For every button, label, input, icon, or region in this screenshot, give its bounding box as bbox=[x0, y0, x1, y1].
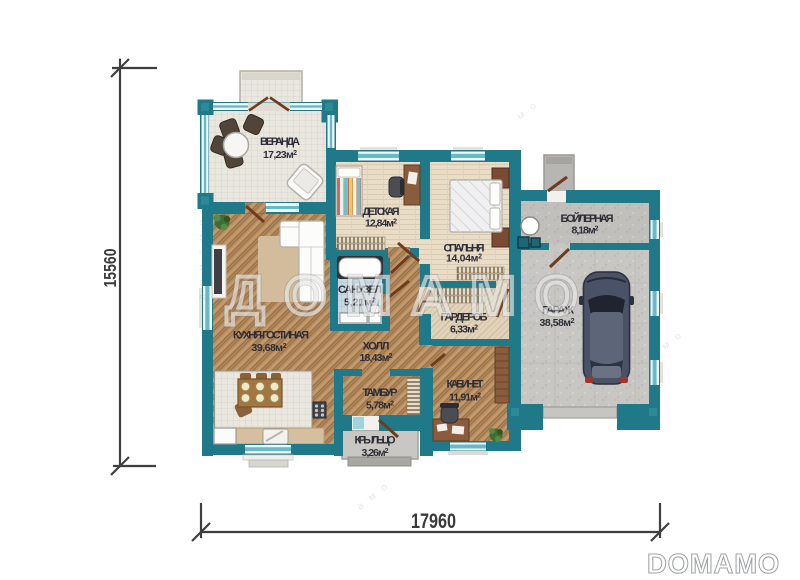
svg-text:3,26м2: 3,26м2 bbox=[362, 447, 389, 459]
svg-text:12,84м2: 12,84м2 bbox=[365, 218, 397, 230]
svg-text:КАБИНЕТ: КАБИНЕТ bbox=[447, 379, 484, 391]
svg-text:д о м а м о: д о м а м о bbox=[197, 217, 208, 300]
svg-text:18,43м2: 18,43м2 bbox=[360, 352, 393, 364]
svg-text:ХОЛЛ: ХОЛЛ bbox=[363, 341, 390, 353]
svg-text:ТАМБУР: ТАМБУР bbox=[363, 387, 398, 399]
svg-text:КРЫЛЬЦО: КРЫЛЬЦО bbox=[355, 435, 396, 447]
svg-text:5,78м2: 5,78м2 bbox=[366, 400, 394, 412]
svg-text:КУХНЯ-ГОСТИНАЯ: КУХНЯ-ГОСТИНАЯ bbox=[233, 330, 309, 342]
svg-text:8,18м2: 8,18м2 bbox=[572, 225, 599, 237]
svg-text:БОЙЛЕРНАЯ: БОЙЛЕРНАЯ bbox=[561, 212, 614, 225]
svg-text:ДЕТСКАЯ: ДЕТСКАЯ bbox=[363, 206, 400, 218]
svg-text:14,04м2: 14,04м2 bbox=[446, 253, 482, 265]
svg-text:ДОМАМО: ДОМАМО bbox=[226, 266, 597, 326]
svg-text:39,68м2: 39,68м2 bbox=[252, 342, 287, 354]
svg-text:DOMAMO: DOMAMO bbox=[647, 548, 780, 579]
svg-text:ВЕРАНДА: ВЕРАНДА bbox=[260, 136, 300, 148]
svg-text:17,23м2: 17,23м2 bbox=[263, 149, 297, 161]
svg-text:11,91м2: 11,91м2 bbox=[449, 392, 481, 404]
svg-text:15560: 15560 bbox=[100, 248, 120, 287]
svg-text:17960: 17960 bbox=[411, 510, 456, 533]
